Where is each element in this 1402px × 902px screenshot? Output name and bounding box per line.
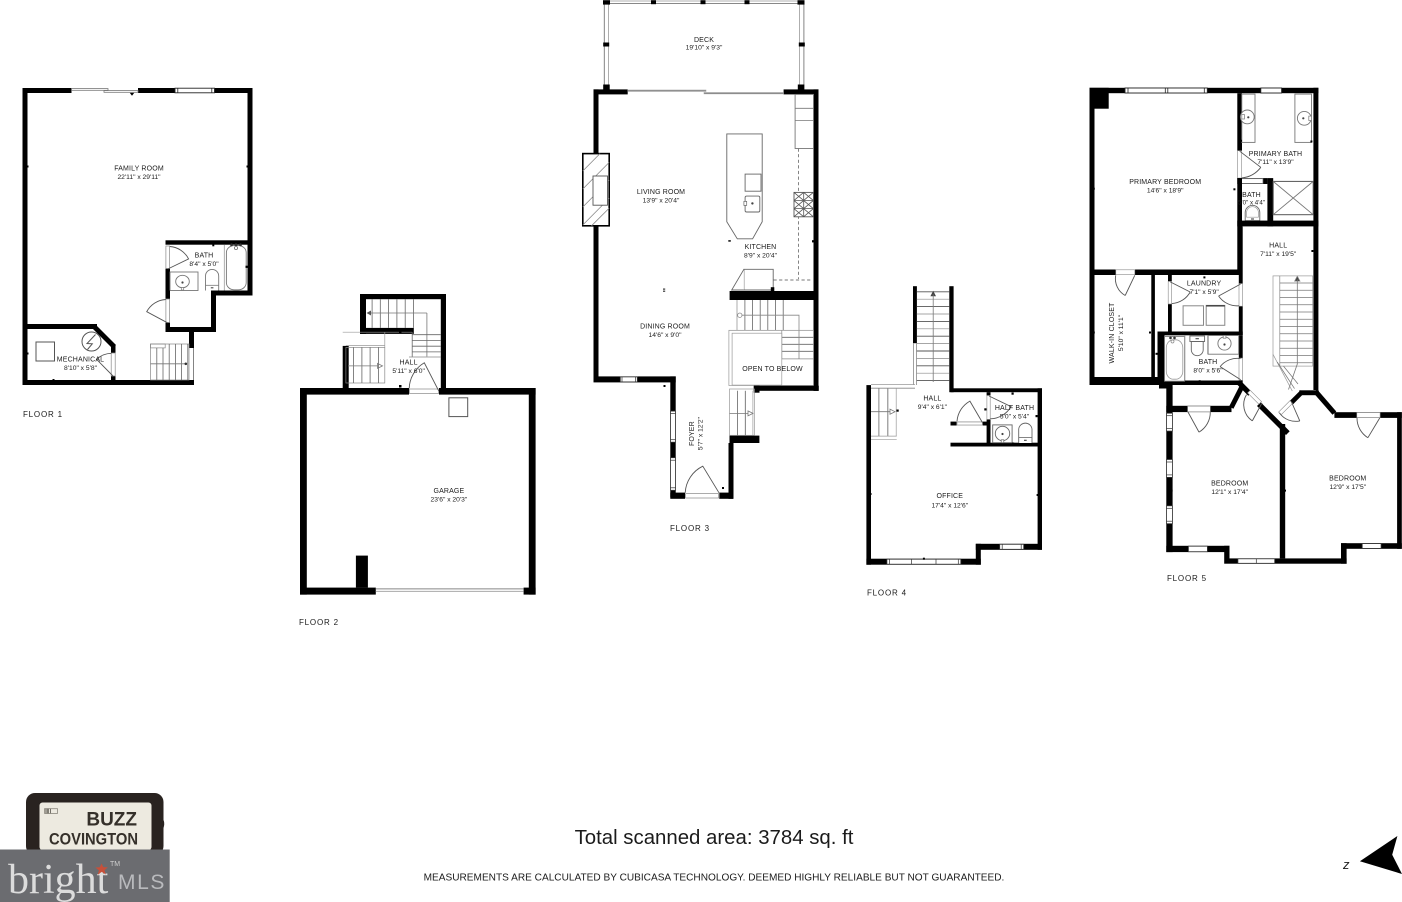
svg-text:5'10" x 11'1": 5'10" x 11'1" <box>1118 314 1125 351</box>
svg-text:BEDROOM: BEDROOM <box>1211 480 1248 487</box>
svg-text:7'11" x 13'9": 7'11" x 13'9" <box>1257 159 1294 166</box>
svg-text:FLOOR 5: FLOOR 5 <box>1167 574 1207 583</box>
svg-text:8'4" x 5'0": 8'4" x 5'0" <box>189 261 219 268</box>
svg-text:5'0" x 5'4": 5'0" x 5'4" <box>1000 413 1030 420</box>
svg-text:OPEN TO BELOW: OPEN TO BELOW <box>742 366 803 373</box>
svg-text:z: z <box>1342 857 1350 872</box>
svg-text:13'9" x 20'4": 13'9" x 20'4" <box>643 198 680 205</box>
svg-text:HALL: HALL <box>400 360 418 367</box>
svg-text:PRIMARY BEDROOM: PRIMARY BEDROOM <box>1129 179 1201 186</box>
svg-text:19'10" x 9'3": 19'10" x 9'3" <box>686 45 723 52</box>
svg-text:bright: bright <box>8 857 109 902</box>
svg-text:DINING ROOM: DINING ROOM <box>640 324 690 331</box>
svg-text:OFFICE: OFFICE <box>937 493 964 500</box>
svg-text:8'9" x 20'4": 8'9" x 20'4" <box>744 253 778 260</box>
svg-text:FLOOR 4: FLOOR 4 <box>867 589 907 598</box>
svg-text:COVINGTON: COVINGTON <box>49 831 138 849</box>
svg-text:22'11" x 29'11": 22'11" x 29'11" <box>117 174 161 181</box>
svg-text:FOYER: FOYER <box>689 421 696 446</box>
svg-text:Total scanned area: 3784 sq. f: Total scanned area: 3784 sq. ft <box>575 827 854 849</box>
svg-text:HALL: HALL <box>923 396 941 403</box>
svg-text:HALL: HALL <box>1269 243 1287 250</box>
svg-text:LIVING ROOM: LIVING ROOM <box>637 189 685 196</box>
svg-text:DECK: DECK <box>694 37 714 44</box>
svg-text:9'4" x 6'1": 9'4" x 6'1" <box>918 404 948 411</box>
svg-text:7'1" x 5'9": 7'1" x 5'9" <box>1189 289 1219 296</box>
svg-text:WALK-IN CLOSET: WALK-IN CLOSET <box>1109 302 1116 364</box>
svg-text:PRIMARY BATH: PRIMARY BATH <box>1249 151 1303 158</box>
svg-text:FLOOR 3: FLOOR 3 <box>670 524 710 533</box>
svg-text:LAUNDRY: LAUNDRY <box>1187 281 1222 288</box>
svg-text:12'9" x 17'5": 12'9" x 17'5" <box>1329 484 1366 491</box>
svg-text:MEASUREMENTS ARE CALCULATED BY: MEASUREMENTS ARE CALCULATED BY CUBICASA … <box>424 873 1005 884</box>
svg-text:BATH: BATH <box>1199 359 1218 366</box>
svg-text:8'10" x 5'8": 8'10" x 5'8" <box>64 365 98 372</box>
svg-text:5'0" x 4'4": 5'0" x 4'4" <box>1238 200 1265 207</box>
svg-text:14'6" x 18'9": 14'6" x 18'9" <box>1147 187 1184 194</box>
svg-text:MLS: MLS <box>118 871 166 894</box>
svg-text:12'1" x 17'4": 12'1" x 17'4" <box>1211 489 1248 496</box>
svg-text:14'6" x 9'0": 14'6" x 9'0" <box>649 332 683 339</box>
svg-text:FAMILY ROOM: FAMILY ROOM <box>114 166 164 173</box>
svg-text:KITCHEN: KITCHEN <box>745 244 777 251</box>
svg-text:BATH: BATH <box>195 253 214 260</box>
svg-text:HALF BATH: HALF BATH <box>995 405 1034 412</box>
svg-text:FLOOR 1: FLOOR 1 <box>23 410 63 419</box>
svg-text:BEDROOM: BEDROOM <box>1329 476 1366 483</box>
svg-text:17'4" x 12'6": 17'4" x 12'6" <box>931 503 968 510</box>
svg-text:BUZZ: BUZZ <box>86 810 137 831</box>
svg-text:TM: TM <box>110 861 120 868</box>
svg-text:7'11" x 19'5": 7'11" x 19'5" <box>1260 251 1297 258</box>
svg-text:5'7" x 12'2": 5'7" x 12'2" <box>698 417 705 451</box>
svg-text:8'0" x 5'6": 8'0" x 5'6" <box>1193 368 1223 375</box>
svg-text:MECHANICAL: MECHANICAL <box>57 357 104 364</box>
svg-text:FLOOR 2: FLOOR 2 <box>299 618 339 627</box>
svg-text:23'6" x 20'3": 23'6" x 20'3" <box>431 497 468 504</box>
svg-text:5'11" x 6'0": 5'11" x 6'0" <box>392 368 425 375</box>
svg-text:GARAGE: GARAGE <box>433 488 464 495</box>
svg-text:BATH: BATH <box>1242 192 1261 199</box>
